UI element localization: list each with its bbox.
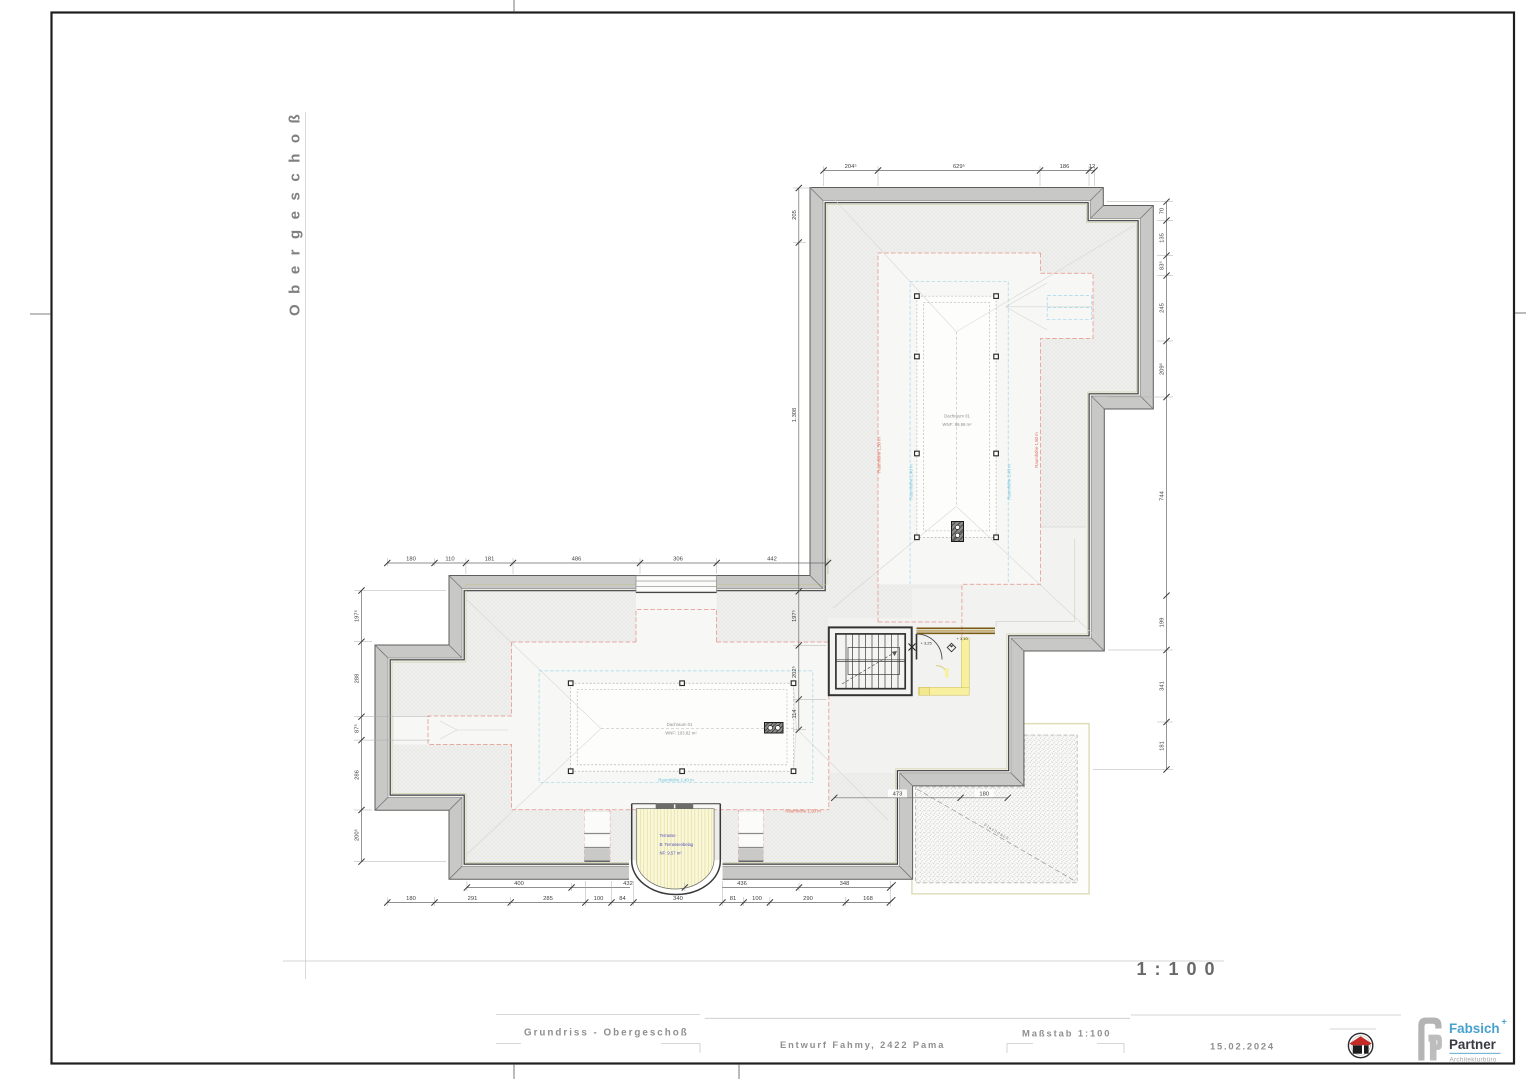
svg-text:Grundriss - Obergeschoß: Grundriss - Obergeschoß [524, 1028, 689, 1039]
svg-text:135: 135 [1160, 233, 1166, 243]
svg-text:348: 348 [840, 881, 850, 887]
svg-text:15.02.2024: 15.02.2024 [1210, 1041, 1275, 1052]
svg-text:209⁵: 209⁵ [1159, 362, 1166, 375]
svg-text:291: 291 [468, 896, 478, 902]
svg-text:Raumhöhe 1,50 m: Raumhöhe 1,50 m [1034, 432, 1039, 468]
svg-text:473: 473 [893, 791, 903, 797]
svg-text:200⁵: 200⁵ [354, 828, 361, 841]
svg-text:Entwurf Fahmy, 2422 Pama: Entwurf Fahmy, 2422 Pama [780, 1040, 945, 1050]
svg-text:B: Terrassenbelag: B: Terrassenbelag [660, 842, 694, 847]
svg-text:81: 81 [730, 896, 736, 902]
svg-text:Maßstab 1:100: Maßstab 1:100 [1022, 1028, 1111, 1039]
svg-text:1.308: 1.308 [792, 408, 798, 423]
svg-text:180: 180 [406, 557, 416, 563]
svg-text:197⁵: 197⁵ [354, 609, 361, 622]
svg-text:83⁵: 83⁵ [1159, 260, 1166, 269]
svg-text:+ 3,25: + 3,25 [921, 641, 933, 646]
svg-text:100: 100 [594, 896, 604, 902]
svg-text:Raumhöhe 1,50 m: Raumhöhe 1,50 m [877, 437, 882, 473]
svg-text:205: 205 [792, 210, 798, 220]
svg-text:744: 744 [1160, 490, 1166, 500]
svg-text:110: 110 [445, 557, 454, 563]
svg-text:442: 442 [767, 557, 777, 563]
svg-text:Raumhöhe 2,40 m: Raumhöhe 2,40 m [1007, 464, 1012, 500]
svg-text:629⁵: 629⁵ [953, 163, 966, 170]
svg-text:341: 341 [1160, 681, 1166, 691]
svg-text:432: 432 [623, 881, 633, 887]
svg-text:84: 84 [619, 896, 626, 902]
svg-text:245: 245 [1160, 303, 1166, 313]
svg-text:87⁵: 87⁵ [354, 723, 361, 732]
svg-text:1:100: 1:100 [1137, 959, 1223, 979]
svg-text:290: 290 [803, 896, 813, 902]
svg-text:Terrasse: Terrasse [660, 833, 677, 838]
svg-text:199: 199 [1160, 618, 1166, 628]
svg-text:Obergeschoß: Obergeschoß [287, 104, 304, 316]
svg-text:Dachraum 01: Dachraum 01 [667, 722, 693, 727]
svg-text:NF: 9,57 m²: NF: 9,57 m² [660, 851, 683, 856]
svg-text:100: 100 [752, 896, 762, 902]
svg-text:Partner: Partner [1449, 1037, 1497, 1052]
svg-text:181: 181 [485, 557, 495, 563]
svg-text:+: + [1502, 1017, 1507, 1027]
svg-text:70: 70 [1160, 208, 1166, 214]
svg-text:180: 180 [406, 896, 416, 902]
svg-text:400: 400 [514, 881, 524, 887]
svg-text:436: 436 [737, 881, 747, 887]
svg-text:181: 181 [1160, 741, 1166, 751]
svg-text:Raumhöhe 2,40 m: Raumhöhe 2,40 m [909, 464, 914, 500]
svg-text:180: 180 [979, 791, 989, 797]
svg-text:306: 306 [673, 557, 683, 563]
svg-text:202⁵: 202⁵ [791, 665, 798, 678]
svg-text:12: 12 [1089, 164, 1095, 170]
svg-text:168: 168 [863, 896, 873, 902]
svg-text:WNF: 103,82 m²: WNF: 103,82 m² [665, 731, 697, 736]
svg-text:288: 288 [355, 674, 361, 684]
svg-text:Fabsich: Fabsich [1449, 1021, 1500, 1036]
svg-text:486: 486 [572, 557, 582, 563]
svg-text:285: 285 [543, 896, 553, 902]
svg-text:114: 114 [792, 709, 798, 719]
svg-text:204⁵: 204⁵ [845, 163, 858, 170]
svg-text:Raumhöhe 2,40 m: Raumhöhe 2,40 m [658, 778, 694, 783]
svg-text:197⁵: 197⁵ [791, 609, 798, 622]
svg-text:186: 186 [1060, 164, 1070, 170]
svg-text:Raumhöhe 1,50 m: Raumhöhe 1,50 m [785, 809, 821, 814]
svg-text:340: 340 [673, 896, 683, 902]
svg-text:WNF: 99,99 m²: WNF: 99,99 m² [942, 422, 972, 427]
svg-text:Dachraum 01: Dachraum 01 [944, 414, 970, 419]
svg-text:286: 286 [355, 770, 361, 780]
svg-text:Architekturbüro: Architekturbüro [1450, 1057, 1497, 1064]
svg-text:+ 3,10: + 3,10 [957, 636, 969, 641]
